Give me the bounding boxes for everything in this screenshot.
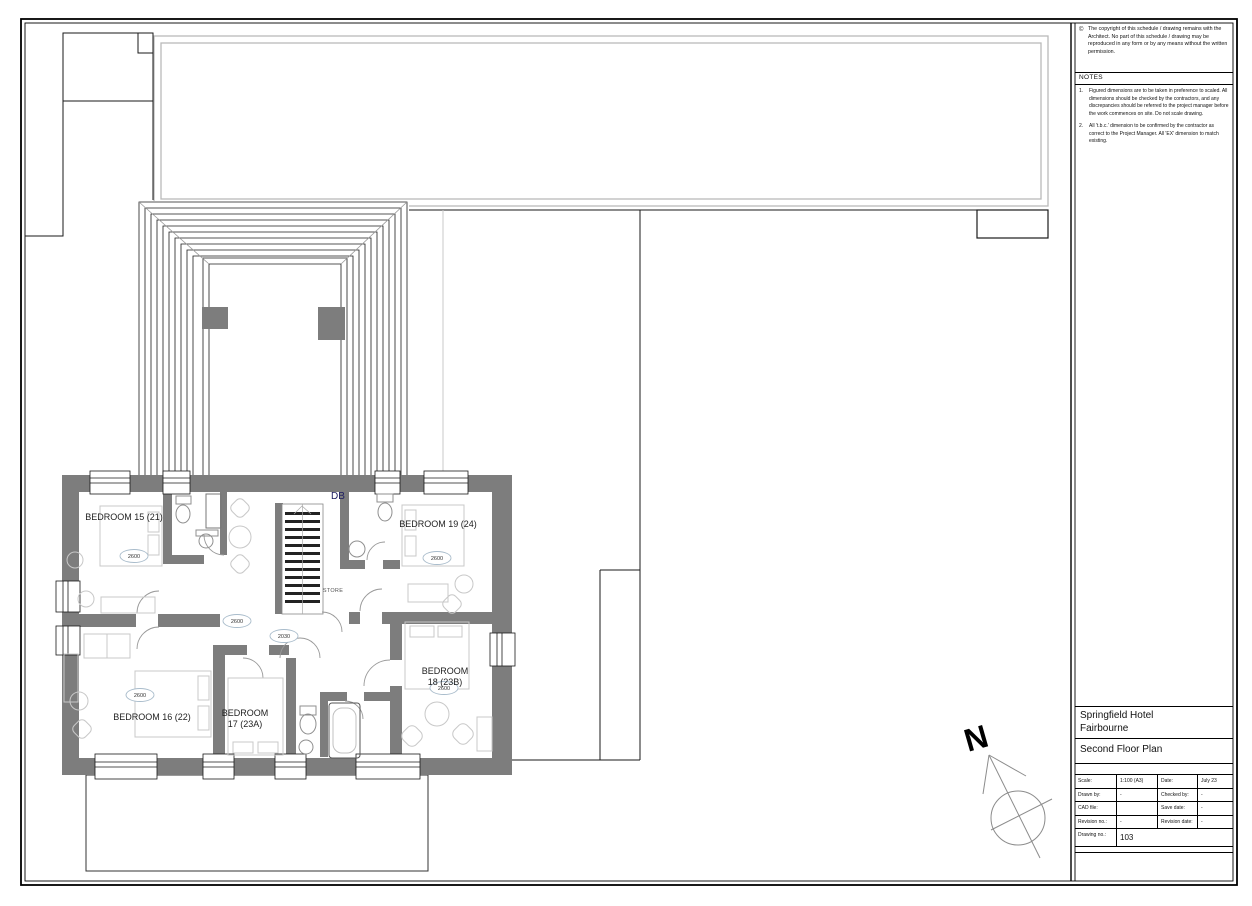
room-label-bedroom-15: BEDROOM 15 (21) [85, 512, 163, 522]
north-arrow: N [960, 718, 1052, 858]
drawn-by-label: Drawn by: [1075, 788, 1116, 801]
room-label-bedroom-17-line2: 17 (23A) [228, 719, 263, 729]
store-label: STORE [323, 588, 343, 594]
revision-no-label: Revision no.: [1075, 815, 1116, 828]
copyright-icon: © [1079, 26, 1086, 57]
room-label-bedroom-16: BEDROOM 16 (22) [113, 712, 191, 722]
copyright-text: The copyright of this schedule / drawing… [1088, 26, 1229, 57]
roof-outline [154, 36, 1048, 206]
drawing-no-label: Drawing no.: [1075, 828, 1116, 846]
dim-corridor: 2600 [231, 619, 243, 625]
cad-file-label: CAD file: [1075, 801, 1116, 815]
room-label-bedroom-17-line1: BEDROOM [222, 708, 269, 718]
date-label: Date: [1157, 775, 1197, 788]
revision-date-value: - [1197, 815, 1233, 828]
dim-bedroom-16: 2600 [134, 693, 146, 699]
site-boundary [25, 33, 153, 236]
save-date-label: Save date: [1157, 801, 1197, 815]
terrace-outline [86, 775, 428, 871]
drawn-by-value: - [1116, 788, 1157, 801]
chimney-right [318, 307, 345, 340]
save-date-value: - [1197, 801, 1233, 815]
notes-heading: NOTES [1079, 74, 1103, 81]
drawing-title: Second Floor Plan [1080, 744, 1162, 755]
dim-landing: 2030 [278, 634, 290, 640]
note-item: 2. All 't.b.c.' dimension to be confirme… [1079, 123, 1230, 146]
room-label-bedroom-18-line2: 18 (23B) [428, 677, 463, 687]
dim-bedroom-19: 2600 [431, 556, 443, 562]
scale-label: Scale: [1075, 775, 1116, 788]
plan-canvas: 2600 2600 2600 2030 2600 2600 BEDROOM 15… [0, 0, 1252, 906]
date-value: July 23 [1197, 775, 1233, 788]
copyright-note: © The copyright of this schedule / drawi… [1079, 26, 1229, 57]
cad-file-value [1116, 801, 1157, 815]
stepped-roof [138, 201, 409, 475]
room-label-bedroom-18-line1: BEDROOM [422, 666, 469, 676]
dim-bedroom-15: 2600 [128, 554, 140, 560]
project-name: Springfield Hotel Fairbourne [1080, 710, 1153, 735]
title-block: © The copyright of this schedule / drawi… [1075, 22, 1233, 882]
checked-by-value: - [1197, 788, 1233, 801]
north-letter: N [960, 718, 992, 759]
floor-plan: 2600 2600 2600 2030 2600 2600 BEDROOM 15… [56, 471, 515, 779]
room-label-bedroom-19: BEDROOM 19 (24) [399, 519, 477, 529]
revision-no-value: - [1116, 815, 1157, 828]
staircase [282, 504, 323, 614]
db-label: DB [331, 491, 345, 502]
notes-list: 1. Figured dimensions are to be taken in… [1079, 88, 1230, 151]
info-table: Scale: 1:100 (A3) Date: July 23 Drawn by… [1075, 774, 1233, 847]
note-item: 1. Figured dimensions are to be taken in… [1079, 88, 1230, 118]
drawing-no-value: 103 [1116, 828, 1233, 846]
checked-by-label: Checked by: [1157, 788, 1197, 801]
revision-date-label: Revision date: [1157, 815, 1197, 828]
chimney-left [202, 307, 228, 329]
drawing-sheet: 2600 2600 2600 2030 2600 2600 BEDROOM 15… [0, 0, 1252, 906]
scale-value: 1:100 (A3) [1116, 775, 1157, 788]
